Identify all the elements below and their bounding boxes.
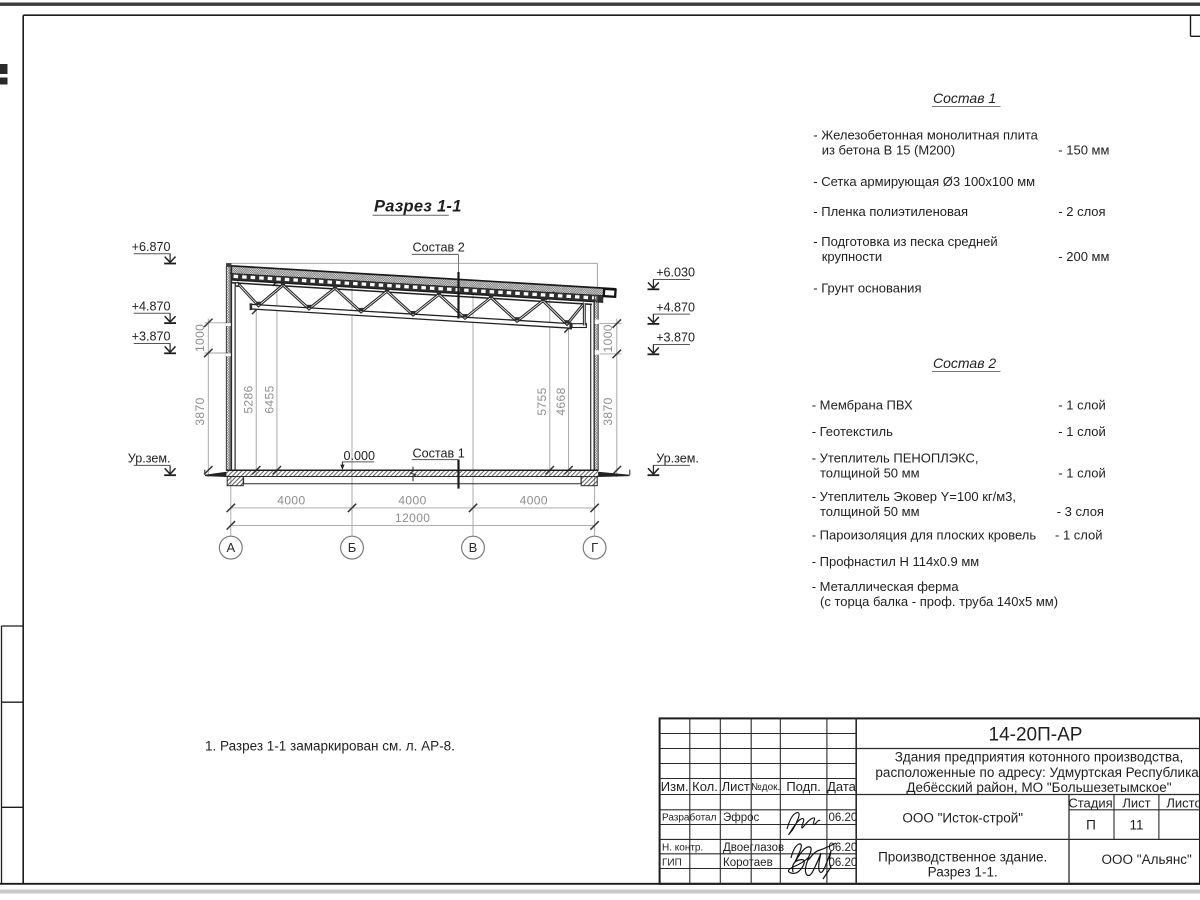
svg-text:- Металлическая ферма: - Металлическая ферма [812,579,960,594]
svg-text:крупности: крупности [822,249,882,264]
svg-text:12000: 12000 [395,511,430,525]
svg-text:толщиной 50 мм: толщиной 50 мм [820,504,920,519]
svg-text:из бетона В 15 (М200): из бетона В 15 (М200) [822,142,956,157]
svg-text:- 1 слой: - 1 слой [1058,466,1106,481]
svg-text:- 2 слоя: - 2 слоя [1058,204,1105,219]
svg-text:Состав 2: Состав 2 [413,240,465,254]
svg-text:06.20: 06.20 [829,857,858,869]
svg-text:- Грунт основания: - Грунт основания [813,281,921,296]
svg-text:- Утеплитель Эковер Y=100 кг/м: - Утеплитель Эковер Y=100 кг/м3, [812,489,1016,504]
svg-text:№док.: №док. [751,782,780,793]
svg-text:толщиной 50 мм: толщиной 50 мм [820,466,920,481]
svg-text:Ур.зем.: Ур.зем. [128,452,171,466]
svg-text:- Профнастил Н 114х0.9 мм: - Профнастил Н 114х0.9 мм [812,554,980,569]
svg-text:Разработал: Разработал [662,811,717,823]
svg-text:1. Разрез 1-1 замаркирован см.: 1. Разрез 1-1 замаркирован см. л. АР-8. [205,738,455,753]
svg-text:4000: 4000 [398,493,426,507]
svg-text:Лист: Лист [722,779,750,794]
svg-text:Состав 1: Состав 1 [933,90,996,106]
svg-text:- 1 слой: - 1 слой [1058,424,1106,439]
svg-text:П: П [1086,817,1096,832]
svg-text:Состав 1: Состав 1 [413,446,465,460]
svg-text:- 200 мм: - 200 мм [1058,249,1109,264]
svg-text:- Подготовка из песка средней: - Подготовка из песка средней [813,234,997,249]
svg-text:4000: 4000 [520,493,548,507]
svg-text:6455: 6455 [262,385,276,413]
svg-text:1000: 1000 [193,324,207,352]
svg-text:- Пароизоляция для плоских кро: - Пароизоляция для плоских кровель [812,527,1037,542]
svg-text:А: А [226,540,235,555]
svg-text:ГИП: ГИП [662,857,682,868]
svg-text:+4.870: +4.870 [132,300,171,314]
svg-text:- 1 слой: - 1 слой [1058,397,1106,412]
svg-text:Дата: Дата [827,779,857,794]
svg-text:расположенные по адресу: Удмур: расположенные по адресу: Удмуртская Респ… [875,765,1200,780]
svg-text:Коротаев: Коротаев [723,857,773,869]
svg-text:06.20: 06.20 [829,812,858,824]
svg-text:5755: 5755 [535,387,549,415]
svg-text:3870: 3870 [193,397,207,425]
svg-text:0.000: 0.000 [344,449,376,463]
svg-text:- 1 слой: - 1 слой [1055,527,1103,542]
svg-text:+3.870: +3.870 [656,331,695,345]
svg-text:(с торца балка - проф. труба 1: (с торца балка - проф. труба 140х5 мм) [820,594,1058,609]
svg-text:Г: Г [591,540,598,555]
svg-text:4668: 4668 [554,387,568,415]
svg-text:Подп.: Подп. [786,779,821,794]
svg-text:+6.870: +6.870 [132,240,171,254]
svg-text:- Утеплитель ПЕНОПЛЭКС,: - Утеплитель ПЕНОПЛЭКС, [812,451,979,466]
svg-text:Эфрос: Эфрос [723,812,760,824]
svg-text:Дебёсский район, МО "Большезет: Дебёсский район, МО "Большезетымское" [906,780,1171,795]
svg-text:+4.870: +4.870 [656,300,695,314]
svg-text:Разрез 1-1: Разрез 1-1 [374,198,462,216]
svg-text:Состав 2: Состав 2 [933,355,996,371]
svg-text:- Железобетонная монолитная п: - Железобетонная монолитная плита [813,127,1038,142]
svg-text:В: В [469,540,478,555]
svg-text:5286: 5286 [242,385,256,413]
svg-text:Ур.зем.: Ур.зем. [656,452,699,466]
svg-text:- Мембрана ПВХ: - Мембрана ПВХ [812,397,913,412]
svg-text:14-20П-АР: 14-20П-АР [989,724,1083,745]
svg-text:Разрез 1-1.: Разрез 1-1. [928,864,998,879]
svg-text:Кол.: Кол. [692,779,718,794]
svg-text:1000: 1000 [601,324,615,352]
svg-text:- 150 мм: - 150 мм [1058,142,1109,157]
svg-text:Н. контр.: Н. контр. [662,843,703,854]
svg-text:Производственное здание.: Производственное здание. [878,849,1047,864]
svg-text:+3.870: +3.870 [132,330,171,344]
svg-text:+6.030: +6.030 [656,266,695,280]
svg-text:3870: 3870 [601,397,615,425]
svg-text:Стадия: Стадия [1068,795,1112,810]
svg-text:Б: Б [348,540,357,555]
svg-text:Лист: Лист [1122,795,1150,810]
svg-text:4000: 4000 [277,493,305,507]
svg-text:- Геотекстиль: - Геотекстиль [812,424,893,439]
svg-text:Листов: Листов [1166,795,1200,810]
svg-text:ООО "Альянс": ООО "Альянс" [1102,852,1192,867]
svg-text:Изм.: Изм. [661,779,689,794]
svg-text:Двоеглазов: Двоеглазов [723,842,784,854]
svg-text:Здания предприятия котонного п: Здания предприятия котонного производств… [895,749,1183,764]
svg-text:ООО "Исток-строй": ООО "Исток-строй" [902,810,1023,825]
svg-text:11: 11 [1129,817,1143,832]
svg-text:- Пленка полиэтиленовая: - Пленка полиэтиленовая [813,204,968,219]
svg-text:- Сетка армирующая Ø3 100х100: - Сетка армирующая Ø3 100х100 мм [813,174,1035,189]
svg-text:- 3 слоя: - 3 слоя [1057,504,1104,519]
